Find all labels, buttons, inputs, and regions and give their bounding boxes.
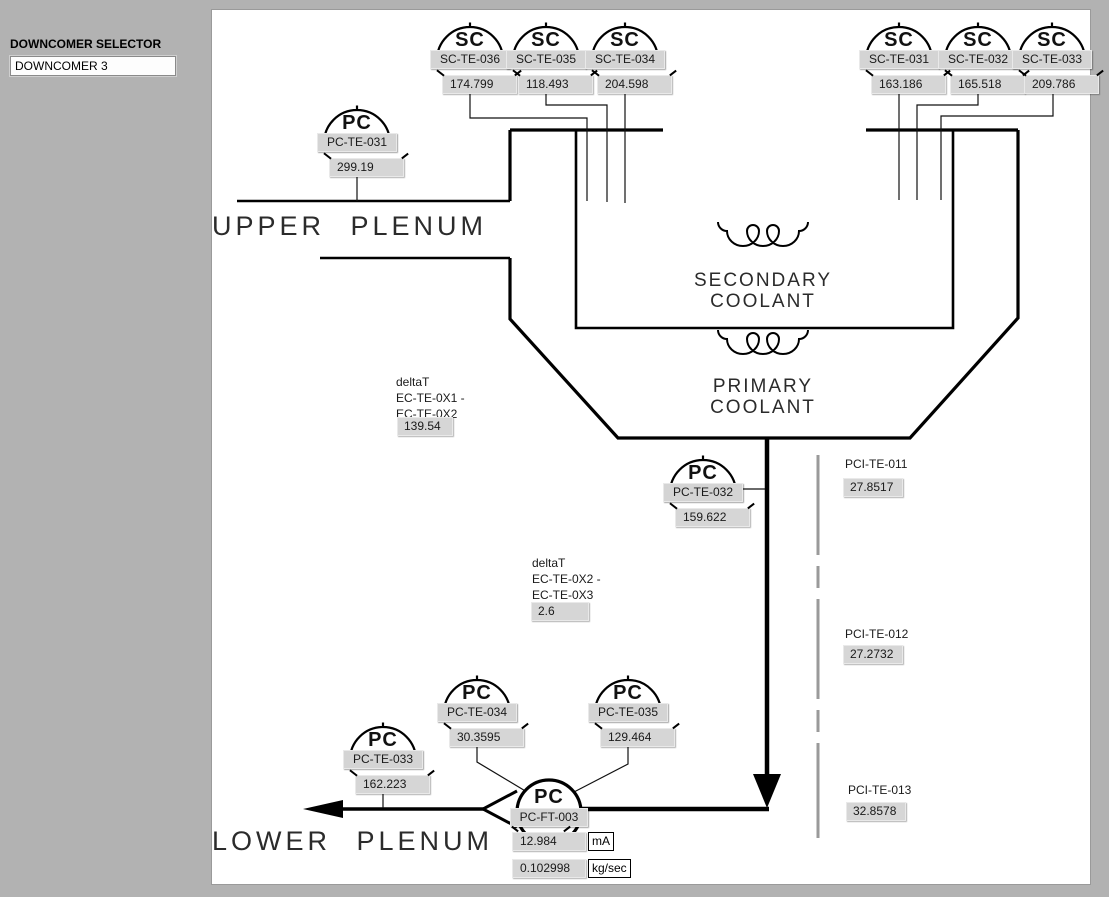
delta-t-2-label: deltaTEC-TE-0X2 -EC-TE-0X3 — [532, 555, 601, 603]
gauge-sc-te-032: SC SC-TE-032 165.518 — [936, 22, 1020, 118]
gauge-tag-label: PC-TE-035 — [588, 703, 668, 722]
gauge-sc-te-033: SC SC-TE-033 209.786 — [1010, 22, 1094, 118]
secondary-coolant-caption-line2: COOLANT — [678, 291, 848, 313]
flow-value-indicator: 0.102998 — [512, 859, 586, 878]
upper-plenum-caption: UPPER PLENUM — [212, 211, 487, 242]
gauge-value-indicator: 162.223 — [355, 775, 430, 794]
pci-te-012-label: PCI-TE-012 — [845, 626, 908, 642]
gauge-tag-label: PC-TE-034 — [437, 703, 517, 722]
pci-te-013-label: PCI-TE-013 — [848, 782, 911, 798]
downcomer-selector-dropdown[interactable]: DOWNCOMER 3 — [10, 56, 176, 76]
gauge-value-indicator: 299.19 — [329, 158, 404, 177]
downcomer-selector-label: DOWNCOMER SELECTOR — [10, 37, 161, 51]
gauge-tag-label: PC-FT-003 — [510, 808, 588, 827]
hmi-window: DOWNCOMER SELECTOR DOWNCOMER 3 UPPER PLE… — [0, 0, 1109, 897]
gauge-pc-te-034: PC PC-TE-034 30.3595 — [435, 675, 519, 771]
gauge-tag-label: SC-TE-036 — [430, 50, 510, 69]
gauge-type-label: SC — [504, 29, 588, 52]
gauge-sc-te-031: SC SC-TE-031 163.186 — [857, 22, 941, 118]
pci-te-012-value-indicator: 27.2732 — [843, 645, 903, 664]
pci-te-013-value-indicator: 32.8578 — [846, 802, 906, 821]
gauge-tag-label: SC-TE-033 — [1012, 50, 1092, 69]
gauge-type-label: PC — [586, 682, 670, 705]
gauge-tag-label: SC-TE-032 — [938, 50, 1018, 69]
gauge-type-label: PC — [435, 682, 519, 705]
flow-transmitter-pc-ft-003: PC PC-FT-003 12.984 mA 0.102998 kg/sec — [507, 775, 637, 885]
gauge-type-label: PC — [507, 786, 591, 809]
pci-te-011-label: PCI-TE-011 — [845, 456, 907, 472]
delta-t-2-value-indicator: 2.6 — [531, 602, 589, 621]
primary-coolant-caption-line2: COOLANT — [678, 397, 848, 419]
gauge-type-label: SC — [583, 29, 667, 52]
gauge-value-indicator: 159.622 — [675, 508, 750, 527]
gauge-pc-te-031: PC PC-TE-031 299.19 — [315, 105, 399, 201]
gauge-sc-te-036: SC SC-TE-036 174.799 — [428, 22, 512, 118]
current-value-indicator: 12.984 — [512, 832, 586, 851]
gauge-value-indicator: 30.3595 — [449, 728, 524, 747]
gauge-pc-te-035: PC PC-TE-035 129.464 — [586, 675, 670, 771]
gauge-type-label: PC — [661, 462, 745, 485]
gauge-type-label: SC — [936, 29, 1020, 52]
gauge-tag-label: SC-TE-035 — [506, 50, 586, 69]
delta-t-1-value-indicator: 139.54 — [397, 417, 453, 436]
delta-t-1-label: deltaTEC-TE-0X1 -EC-TE-0X2 — [396, 374, 465, 422]
gauge-value-indicator: 118.493 — [518, 75, 593, 94]
gauge-type-label: SC — [857, 29, 941, 52]
secondary-coolant-caption-line1: SECONDARY — [678, 270, 848, 292]
gauge-tag-label: PC-TE-032 — [663, 483, 743, 502]
gauge-pc-te-032: PC PC-TE-032 159.622 — [661, 455, 745, 551]
lower-plenum-caption: LOWER PLENUM — [212, 826, 493, 857]
gauge-type-label: SC — [1010, 29, 1094, 52]
gauge-sc-te-034: SC SC-TE-034 204.598 — [583, 22, 667, 118]
gauge-type-label: PC — [341, 729, 425, 752]
primary-coolant-caption-line1: PRIMARY — [678, 376, 848, 398]
gauge-value-indicator: 163.186 — [871, 75, 946, 94]
gauge-pc-te-033: PC PC-TE-033 162.223 — [341, 722, 425, 818]
flow-unit-label: kg/sec — [588, 859, 631, 878]
gauge-tag-label: SC-TE-031 — [859, 50, 939, 69]
gauge-type-label: PC — [315, 112, 399, 135]
gauge-tag-label: PC-TE-033 — [343, 750, 423, 769]
gauge-tag-label: SC-TE-034 — [585, 50, 665, 69]
gauge-tag-label: PC-TE-031 — [317, 133, 397, 152]
gauge-value-indicator: 129.464 — [600, 728, 675, 747]
gauge-sc-te-035: SC SC-TE-035 118.493 — [504, 22, 588, 118]
gauge-type-label: SC — [428, 29, 512, 52]
gauge-value-indicator: 209.786 — [1024, 75, 1099, 94]
current-unit-label: mA — [588, 832, 614, 851]
gauge-value-indicator: 204.598 — [597, 75, 672, 94]
pci-te-011-value-indicator: 27.8517 — [843, 478, 903, 497]
